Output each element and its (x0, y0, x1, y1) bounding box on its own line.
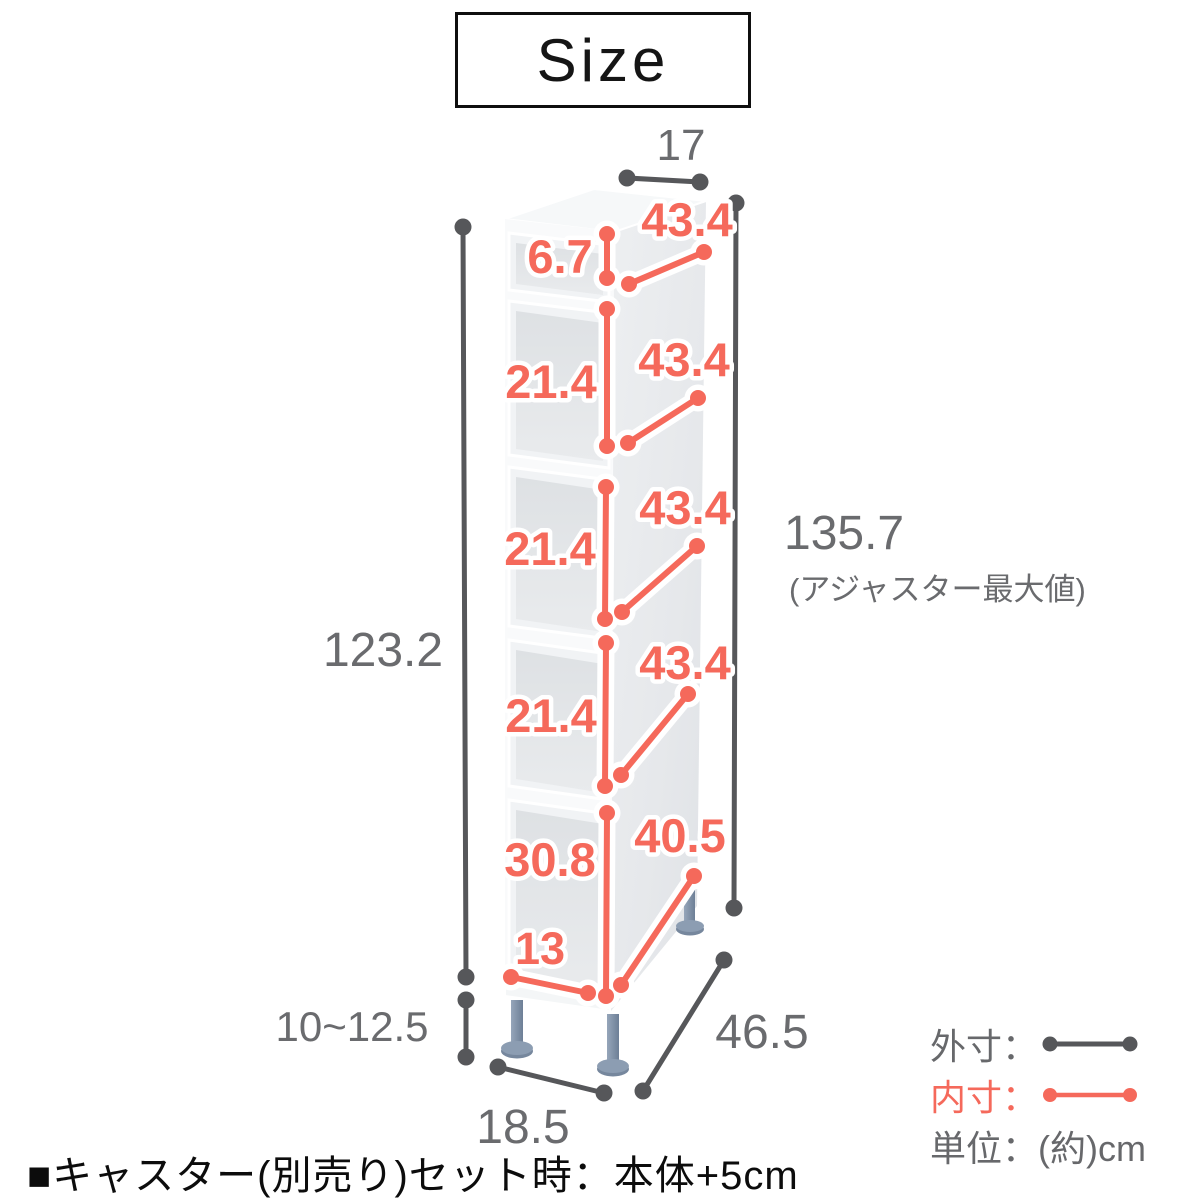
legend-unit-row: 単位： (約)cm (930, 1120, 1190, 1171)
dim-drawer2-depth-label: 43.4 (638, 333, 729, 386)
leg-front-left (501, 1000, 533, 1059)
dim-drawer5-width-label: 13 (515, 923, 565, 974)
caster-footnote: ■キャスター(別売り)セット時：本体+5cm (27, 1143, 799, 1201)
dim-drawer2-height-label: 21.4 (505, 355, 596, 408)
dim-top-width-label: 17 (657, 121, 706, 170)
legend-unit-value: (約)cm (1038, 1120, 1146, 1172)
dim-max-height-label: 135.7 (784, 507, 904, 560)
legend-inner-label: 内寸： (930, 1069, 1038, 1121)
dim-body-height-line (455, 219, 475, 986)
dim-drawer4-depth-label: 43.4 (639, 636, 730, 689)
dim-max-height-line (726, 195, 745, 917)
size-diagram-page: 17 123.2 10~12.5 135.7 (アジャスター最大値) 46.5 … (0, 0, 1200, 1200)
dim-top-width-line (619, 170, 709, 191)
dim-drawer3-height-label: 21.4 (504, 522, 595, 575)
dim-depth-label: 46.5 (715, 1006, 808, 1059)
outer-dimension-line-icon (1040, 1035, 1140, 1053)
dim-drawer5-depth-label: 40.5 (634, 809, 725, 862)
legend: 外寸： 内寸： 単位： (約)cm (930, 1018, 1190, 1171)
dim-drawer1-depth-label: 43.4 (641, 193, 732, 246)
inner-dimension-line-icon (1040, 1086, 1140, 1104)
dim-adjuster-range-line (458, 992, 475, 1066)
legend-unit-label: 単位： (930, 1120, 1038, 1172)
page-title: Size (537, 26, 670, 95)
dim-drawer5-height-label: 30.8 (504, 833, 595, 886)
dim-drawer4-height-label: 21.4 (505, 689, 596, 742)
dim-body-height-label: 123.2 (323, 624, 443, 677)
legend-inner-row: 内寸： (930, 1069, 1190, 1120)
legend-outer-label: 外寸： (930, 1018, 1038, 1070)
dim-drawer3-depth-label: 43.4 (639, 481, 730, 534)
dim-bottom-width-line (490, 1059, 613, 1102)
title-box: Size (455, 12, 751, 108)
leg-front-right (597, 1014, 629, 1077)
dim-drawer1-height-label: 6.7 (527, 230, 592, 283)
dim-max-height-note: (アジャスター最大値) (789, 572, 1086, 607)
dim-adjuster-range-label: 10~12.5 (276, 1003, 429, 1050)
legend-outer-row: 外寸： (930, 1018, 1190, 1069)
